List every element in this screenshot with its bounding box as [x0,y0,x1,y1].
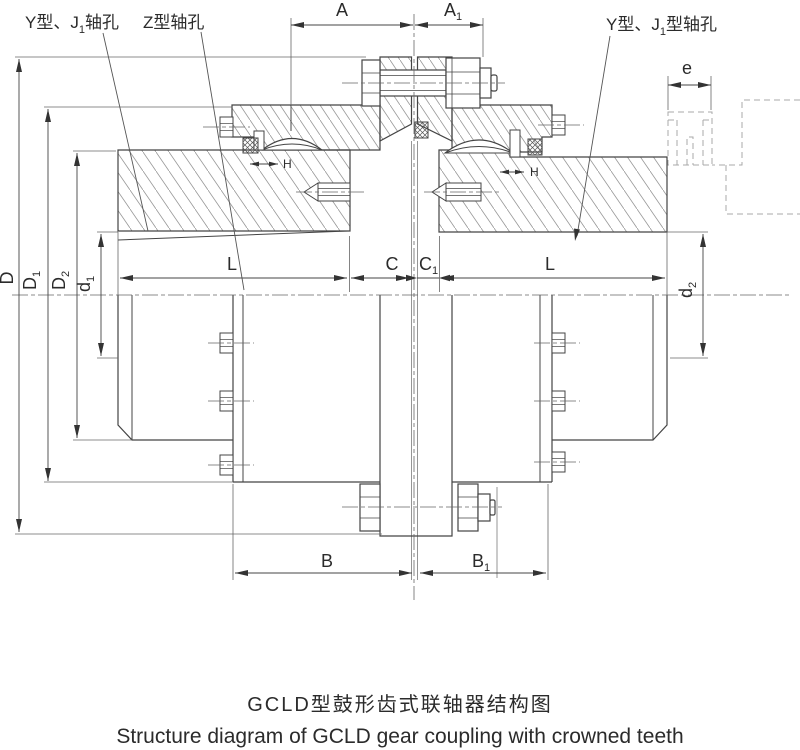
dim-label-B: B [321,551,333,571]
bolt-stub-bottom [490,500,495,515]
phantom-step-top [712,100,800,165]
disc-plates-outline [380,295,452,536]
bolt-head-bottom [360,484,380,531]
bottom-flange-bolt [360,484,495,531]
dim-label-A: A [336,0,348,20]
left-hub-outline [118,295,233,440]
seal-center [415,122,428,138]
bolt-washer-bottom [478,494,490,521]
dim-label-D1: D1 [20,271,43,290]
label-taper-bore-type: Z型轴孔 [143,13,204,32]
dim-label-B1: B1 [472,551,490,574]
caption-chinese: GCLD型鼓形齿式联轴器结构图 [247,693,553,716]
phantom-slot-detail [668,120,712,165]
annotations: Y型、J1轴孔 Z型轴孔 Y型、J1型轴孔 A A1 e D D1 D2 d1 … [0,0,717,574]
phantom-attached-equipment-outline [668,100,800,214]
dim-label-L-right: L [545,254,555,274]
caption-english: Structure diagram of GCLD gear coupling … [116,725,683,748]
seal-ring-left [243,138,258,153]
right-hub-outline [552,295,667,440]
dim-label-D2: D2 [49,271,72,290]
phantom-step-bottom [726,165,800,214]
cover-screws-lower-right [552,333,565,472]
dim-label-d2: d2 [676,282,699,298]
seal-ring-right [528,139,542,155]
lower-external-view [118,295,667,578]
left-hub-taper-bore-line [118,231,348,240]
tooth-end-plate-right [510,130,520,157]
technical-drawing-canvas: Y型、J1轴孔 Z型轴孔 Y型、J1型轴孔 A A1 e D D1 D2 d1 … [0,0,800,750]
coupling-structure-diagram: Y型、J1轴孔 Z型轴孔 Y型、J1型轴孔 A A1 e D D1 D2 d1 … [0,0,800,750]
dim-label-L-left: L [227,254,237,274]
dim-label-H-right: H [530,165,539,179]
bolt-nut-bottom [458,484,478,531]
dim-label-H-left: H [283,157,292,171]
dim-label-D: D [0,272,17,285]
upper-section [118,57,667,580]
captions: GCLD型鼓形齿式联轴器结构图 Structure diagram of GCL… [116,693,683,748]
dim-label-C: C [386,254,399,274]
label-left-bore-type: Y型、J1轴孔 [25,13,119,36]
dim-label-e: e [682,58,692,78]
dim-label-C1: C1 [419,254,438,277]
cover-screws-lower-left [220,333,233,475]
leader-right-arrowhead [574,229,580,242]
label-right-bore-type: Y型、J1型轴孔 [606,15,717,38]
dim-label-A1: A1 [444,0,462,23]
